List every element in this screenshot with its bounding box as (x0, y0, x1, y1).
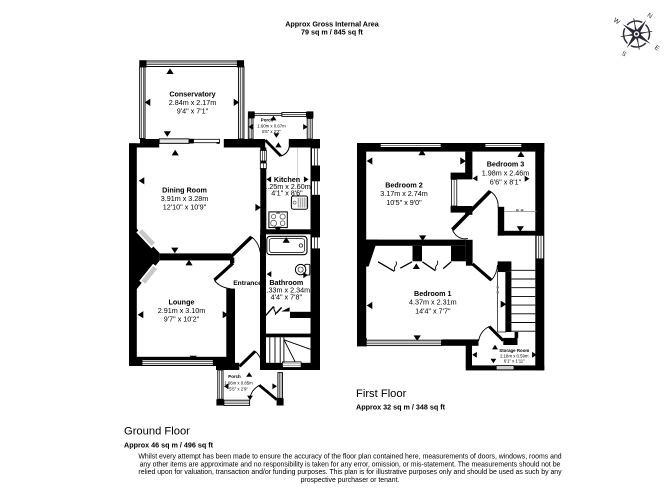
svg-text:4.37m x 2.31m: 4.37m x 2.31m (409, 298, 457, 307)
svg-text:prospective purchaser or tenan: prospective purchaser or tenant. (301, 477, 400, 484)
svg-text:14'4" x 7'7": 14'4" x 7'7" (415, 306, 451, 315)
svg-text:Whilst every attempt has been: Whilst every attempt has been made to en… (138, 454, 561, 461)
svg-text:First Floor: First Floor (356, 388, 407, 400)
svg-text:1.66m x 0.85m: 1.66m x 0.85m (224, 381, 253, 386)
svg-text:10'5" x 9'0": 10'5" x 9'0" (386, 198, 422, 207)
svg-text:6'6" x 8'1": 6'6" x 8'1" (490, 177, 522, 186)
svg-text:1.60m x 0.67m: 1.60m x 0.67m (257, 123, 286, 128)
svg-text:4'1" x 8'6": 4'1" x 8'6" (271, 188, 303, 197)
svg-text:Approx 46 sq m / 496 sq ft: Approx 46 sq m / 496 sq ft (124, 441, 214, 450)
svg-text:1.98m x 2.46m: 1.98m x 2.46m (482, 168, 530, 177)
svg-text:Bedroom 1: Bedroom 1 (414, 289, 452, 298)
svg-text:Porch: Porch (228, 374, 241, 379)
svg-text:5'5" x 2'2": 5'5" x 2'2" (262, 129, 281, 134)
svg-text:Bedroom 3: Bedroom 3 (487, 159, 525, 168)
svg-text:relied upon for valuation, tra: relied upon for valuation, transaction a… (138, 469, 562, 476)
svg-text:Approx 32 sq m / 348 sq ft: Approx 32 sq m / 348 sq ft (356, 402, 446, 411)
svg-text:79 sq m / 845 sq ft: 79 sq m / 845 sq ft (301, 28, 364, 37)
svg-text:any other items are approximat: any other items are approximate and no r… (140, 461, 561, 468)
svg-text:9'4" x 7'1": 9'4" x 7'1" (177, 107, 209, 116)
svg-text:Storage Room: Storage Room (499, 348, 529, 353)
svg-text:6'1" x 1'11": 6'1" x 1'11" (504, 358, 525, 363)
svg-text:4'4" x 7'8": 4'4" x 7'8" (271, 292, 303, 301)
svg-text:5'5" x 2'9": 5'5" x 2'9" (229, 387, 248, 392)
svg-text:Ground Floor: Ground Floor (124, 426, 190, 438)
svg-text:Entrance: Entrance (233, 280, 262, 287)
svg-text:9'7" x 10'2": 9'7" x 10'2" (164, 314, 200, 323)
svg-text:12'10" x 10'9": 12'10" x 10'9" (163, 203, 207, 212)
